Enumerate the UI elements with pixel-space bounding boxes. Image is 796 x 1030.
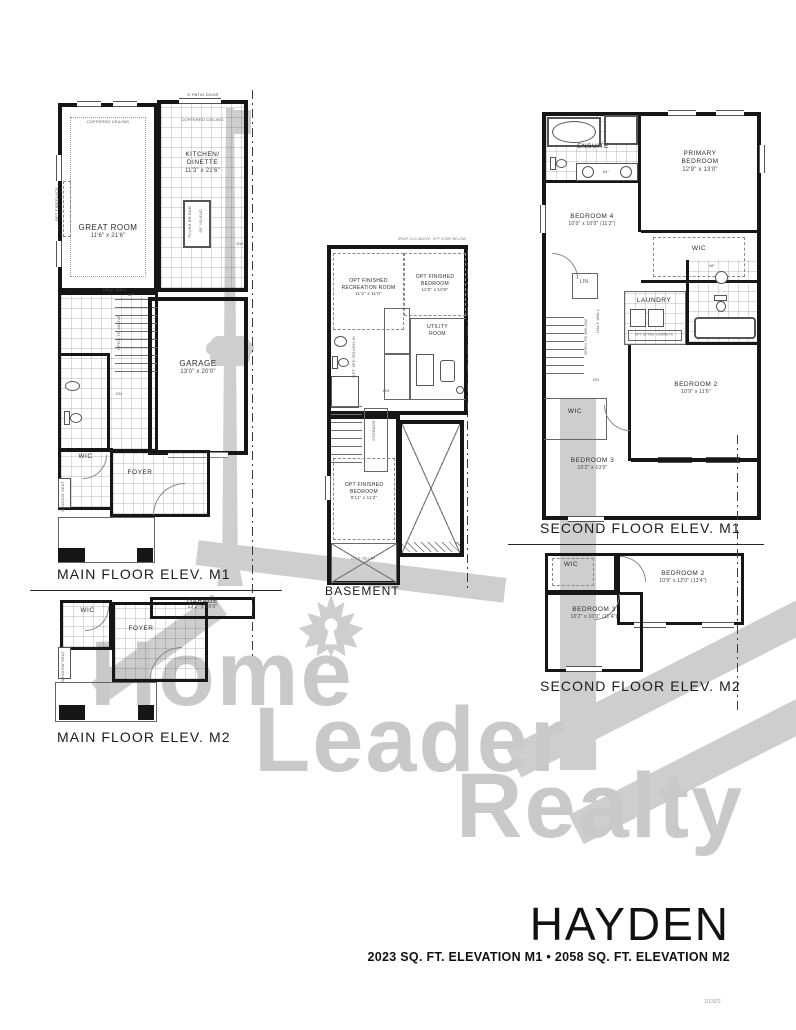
dn-label: DN [111,391,127,396]
closet [384,308,410,354]
window [325,476,331,500]
opt-bedroom-label: OPT FINISHED BEDROOM 11'0" x 10'6" [404,274,466,293]
window [759,145,765,173]
wall [631,458,761,462]
rec-room-label: OPT FINISHED RECREATION ROOM 11'2" x 11'… [333,278,404,297]
patio-door-label: 6' PATIO DOOR [167,92,239,97]
bedroom3-label: BEDROOM 3 10'2" x 10'0" [544,457,641,472]
bedroom2-label: BEDROOM 2 10'9" x 12'0" (13'4") [622,570,744,585]
wic-label: WIC [65,607,110,615]
wic-label: WIC [63,453,108,461]
elevation-divider-left [30,590,282,591]
up-label: UP [121,292,141,297]
second-floor-m2-caption: SECOND FLOOR ELEV. M2 [540,678,741,694]
second-floor-m2-plan: WIC BEDROOM 2 10'9" x 12'0" (13'4") BEDR… [538,548,753,683]
basement-plan: DROP CLG ABOVE, OPT STAIR BELOW OPT FINI… [322,236,482,606]
property-line-right [737,435,738,712]
storage-label: STORAGE [372,420,376,441]
window [702,622,734,628]
window [56,155,62,181]
vanity-48-label: 48" [704,263,720,268]
open-to-below-label: OPEN TO BELOW [584,319,588,355]
porch-pier [138,705,154,720]
wall [58,353,110,356]
main-floor-m1-plan: COFFERED CEILING GREAT ROOM 11'6" x 21'6… [55,93,260,573]
laundry-label: LAUNDRY [624,297,684,305]
garage-label: GARAGE 13'2" x 20'0" [150,598,255,611]
vanity-84-label: 84" [598,169,614,174]
wall [686,342,761,345]
toilet-bowl-icon [556,159,567,168]
shower-icon [604,115,638,145]
primary-wic-label: WIC [653,245,745,253]
bedroom2-label: BEDROOM 2 10'9" x 11'6" [633,381,759,396]
sink-icon [582,166,594,178]
main-floor-m1-caption: MAIN FLOOR ELEV. M1 [57,566,231,582]
shower-icon [331,376,359,408]
wic2-label: WIC [544,408,606,416]
window [56,241,62,267]
wall [107,353,110,452]
window [113,101,137,107]
sump-icon [456,386,464,394]
bedroom3-label: BEDROOM 3 10'2" x 10'0" (11'4") [545,606,643,621]
window [566,666,602,672]
basement-top-note: DROP CLG ABOVE, OPT STAIR BELOW [398,236,464,240]
garage-label: GARAGE 13'0" x 20'0" [148,359,248,377]
sink-icon [334,336,347,347]
property-line-center [467,250,468,588]
lower-bedroom-label: OPT FINISHED BEDROOM 9'11" x 11'2" [333,482,395,501]
wall [686,260,689,344]
sink-icon [715,271,728,284]
floorplan-sheet: Home Leader Realty COFFERED CEILING GREA… [0,0,796,1030]
second-floor-m1-plan: ENSUITE 84" PRIMARY BEDROOM 12'9" x 13'0… [538,105,766,525]
toilet-bowl-icon [70,413,82,423]
coffered-ceiling-outline [70,117,146,277]
wall [641,230,761,233]
opt-fireplace-label: OPT FIREPLACE [55,187,59,221]
model-title: HAYDEN [400,897,730,951]
toilet-bowl-icon [338,358,349,367]
primary-bedroom-label: PRIMARY BEDROOM 12'9" x 13'0" [641,150,759,175]
main-floor-m2-plan: GARAGE 13'2" x 20'0" WIC FOYER WINDOW SE… [55,595,270,735]
porch-pier [59,705,85,720]
foyer-label: FOYER [110,469,170,477]
washer-icon [630,309,646,327]
utility-label: UTILITY ROOM [410,324,465,337]
sink-icon [620,166,632,178]
model-subtitle: 2023 SQ. FT. ELEVATION M1 • 2058 SQ. FT.… [330,950,730,964]
island-label-bar: FLUSH BR BAR [188,206,192,238]
wic2 [544,398,607,440]
dn-label: DN [588,377,604,382]
island-label-size: 60" ISLAND [199,209,203,232]
half-wall-label: HALF WALL [596,309,600,333]
kitchen-island: FLUSH BR BAR 60" ISLAND [183,200,211,248]
rough-in-label: OPT 3PC ROUGH-IN [352,336,356,378]
lin-label: LIN [378,388,394,393]
lin-label: LIN [572,279,596,286]
kitchen-label: KITCHEN/ DINETTE 11'3" x 21'6" [157,151,248,176]
cold-cellar-label: COLD CELLAR [337,557,388,561]
property-line-left [252,90,253,660]
main-floor-m2-caption: MAIN FLOOR ELEV. M2 [57,729,231,745]
elevation-divider-right [508,544,764,545]
furnace-icon [416,354,434,386]
wic-label: WIC [545,561,597,569]
basement-caption: BASEMENT [325,584,400,598]
wall [628,345,631,461]
kitchen-dinette [157,100,248,292]
sink-icon [65,381,80,391]
great-room-label: GREAT ROOM 11'6" x 21'6" [58,223,158,241]
bathtub-basin [552,121,596,143]
watermark-word-realty: Realty [456,760,744,852]
dishwasher-label: DW [233,241,247,246]
hwt-icon [440,360,455,382]
porch-pier [58,548,85,562]
hatch-strip [402,542,460,552]
window [716,110,744,116]
open-to-above-label: OPEN TO ABOVE [117,315,121,350]
coffered-ceiling-kitchen-label: COFFERED CEILING [157,117,248,122]
patio-door [179,98,221,104]
bedroom4-label: BEDROOM 4 10'0" x 10'0" (11'2") [544,213,640,228]
bathtub-icon [694,317,756,339]
cold-cellar [331,543,397,583]
dryer-icon [648,309,664,327]
window-seat-label: WINDOW SEAT [61,651,65,682]
window [77,101,101,107]
garage-slab-above [398,420,464,557]
opt-cabinets-label: OPT UPPER CABINETS [633,333,675,337]
toilet-bowl-icon [716,301,726,312]
second-floor-m1-caption: SECOND FLOOR ELEV. M1 [540,520,741,536]
revision-stamp: 1/13/22 [704,999,721,1005]
foyer-label: FOYER [111,625,171,633]
window [668,110,696,116]
coffered-ceiling-label: COFFERED CEILING [58,119,158,124]
ensuite-label: ENSUITE [546,143,640,151]
lin-closet [572,273,598,299]
staircase [546,317,584,377]
window-seat-label: WINDOW SEAT [61,481,65,512]
porch-pier [137,548,153,562]
